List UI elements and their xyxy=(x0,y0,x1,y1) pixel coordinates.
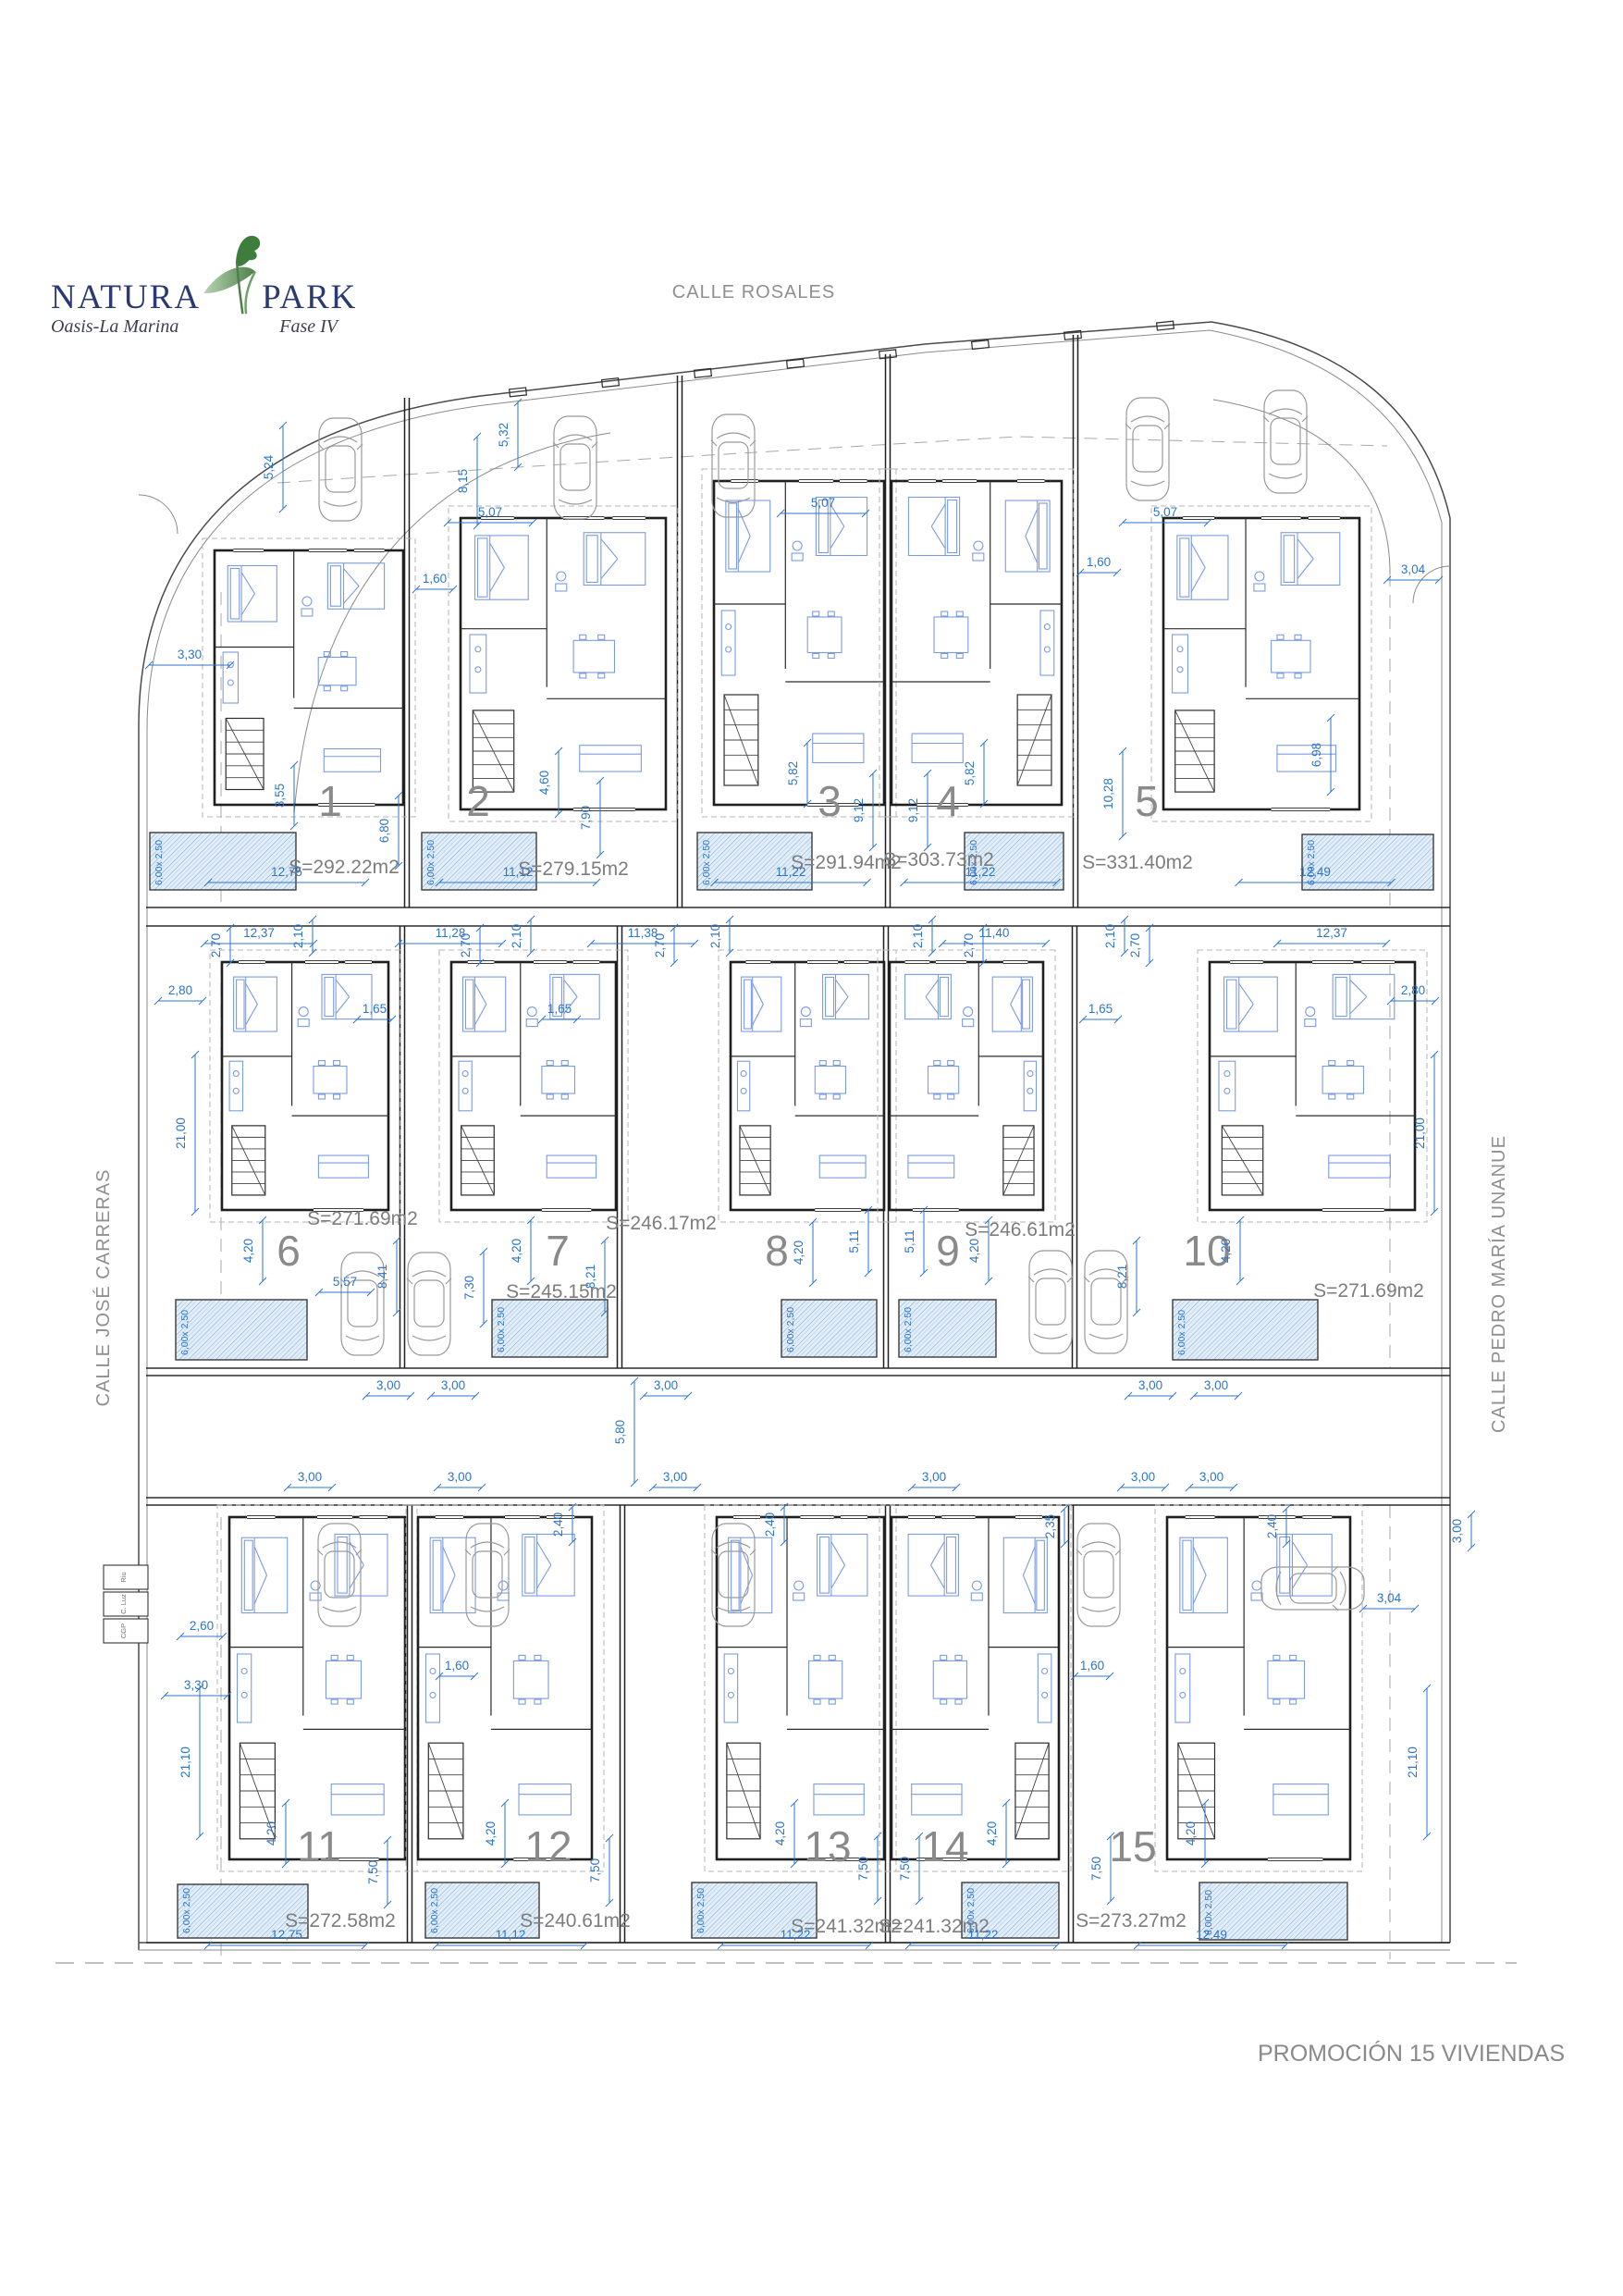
chair-icon xyxy=(941,1699,947,1704)
dimension-label: 12,75 xyxy=(271,1928,302,1942)
dimension-label: 3,00 xyxy=(1204,1378,1228,1392)
dimension-label: 21,00 xyxy=(1413,1117,1427,1149)
dimension-label: 12,37 xyxy=(243,926,275,940)
plan-element xyxy=(1292,1541,1307,1564)
window-icon xyxy=(1186,1514,1215,1520)
pool-dimension-label: 6,00x 2,50 xyxy=(179,1310,191,1355)
chair-icon xyxy=(324,686,330,691)
dimension-label: 1,65 xyxy=(547,1002,572,1016)
sink-icon xyxy=(1254,584,1265,591)
window-icon xyxy=(239,959,265,965)
bed-icon xyxy=(742,977,781,1031)
chair-icon xyxy=(318,1061,325,1066)
pillow-icon xyxy=(1284,536,1294,583)
dimension-label: 2,10 xyxy=(291,924,305,948)
plan-element xyxy=(490,568,505,592)
chair-icon xyxy=(829,1699,835,1704)
hob-icon xyxy=(728,1692,733,1697)
dimension-label: 5,32 xyxy=(497,423,510,447)
dimension-label: 5,82 xyxy=(963,761,977,785)
window-icon xyxy=(840,478,867,484)
house-outline xyxy=(890,962,1043,1210)
plan-element xyxy=(1292,1565,1307,1588)
table-icon xyxy=(807,617,842,653)
pool-dimension-label: 6,00x 2,50 xyxy=(425,840,436,885)
sink-icon xyxy=(310,1593,321,1600)
house-plan xyxy=(217,1505,417,1871)
dimension-label: 2,40 xyxy=(551,1512,565,1537)
plan-element xyxy=(1011,1005,1022,1025)
pool xyxy=(150,833,296,890)
house-outline xyxy=(891,1517,1059,1859)
plan-element xyxy=(564,980,577,996)
house-plan xyxy=(1155,1505,1362,1871)
plot-number: 9 xyxy=(936,1227,960,1275)
chair-icon xyxy=(580,635,586,639)
pool-dimension-label: 6,00x 2,50 xyxy=(429,1888,440,1933)
dimension-label: 3,00 xyxy=(663,1470,687,1484)
chair-icon xyxy=(955,1655,962,1660)
bed-icon xyxy=(241,1537,287,1612)
plan-element xyxy=(1297,559,1313,579)
promotion-title: PROMOCIÓN 15 VIVIENDAS xyxy=(1258,2040,1565,2067)
dimension-label: 9,12 xyxy=(852,798,866,822)
chair-icon xyxy=(934,1061,941,1066)
plan-element xyxy=(601,539,618,560)
pillow-icon xyxy=(586,536,597,583)
dimension-label: 2,80 xyxy=(168,983,192,997)
table-icon xyxy=(1322,1067,1363,1093)
pillow-icon xyxy=(1039,503,1048,569)
toilet-icon xyxy=(1306,1007,1315,1017)
kitchen-icon xyxy=(1038,1654,1051,1722)
car-icon xyxy=(1076,1524,1121,1626)
plan-element xyxy=(443,1547,455,1575)
plot-number: 14 xyxy=(921,1822,968,1870)
car-icon xyxy=(1028,1251,1073,1353)
pillow-icon xyxy=(948,500,957,553)
chair-icon xyxy=(598,635,605,639)
dimension-label: 2,10 xyxy=(911,924,925,948)
window-icon xyxy=(941,1514,975,1520)
plot-area: S=245.15m2 xyxy=(506,1281,617,1302)
dimension-label: 5,82 xyxy=(786,761,800,785)
dimension-label: 8,21 xyxy=(1115,1265,1129,1289)
house-plan xyxy=(1198,950,1427,1222)
toilet-icon xyxy=(299,1007,308,1017)
house-plan xyxy=(439,950,628,1222)
chair-icon xyxy=(547,1094,553,1099)
dimension-label: 3,00 xyxy=(376,1378,400,1392)
bed-icon xyxy=(1003,1537,1047,1612)
window-icon xyxy=(309,548,347,553)
pillow-icon xyxy=(947,1537,956,1594)
plot-number: 2 xyxy=(466,777,490,825)
dimension-label: 3,30 xyxy=(184,1678,208,1692)
chair-icon xyxy=(1295,673,1301,678)
chair-icon xyxy=(814,1655,820,1660)
plot-area: S=279.15m2 xyxy=(518,858,629,880)
dimension-label: 1,65 xyxy=(363,1002,387,1016)
chair-icon xyxy=(1347,1094,1354,1099)
window-icon xyxy=(1309,515,1340,521)
hob-icon xyxy=(1027,1088,1033,1093)
bed-icon xyxy=(1180,1537,1227,1612)
bed-icon xyxy=(430,1537,475,1612)
dimension-label: 5,11 xyxy=(847,1229,861,1253)
plan-element xyxy=(1011,983,1022,1004)
sink-icon xyxy=(971,1593,982,1600)
toilet-icon xyxy=(557,572,566,581)
bed-icon xyxy=(905,974,952,1018)
plot-area: S=292.22m2 xyxy=(289,857,400,878)
chair-icon xyxy=(833,1061,840,1066)
house-plan xyxy=(879,469,1074,817)
house-plan xyxy=(878,950,1055,1222)
window-icon xyxy=(1312,959,1353,965)
pillow-icon xyxy=(940,977,948,1016)
setback-line xyxy=(1151,506,1371,821)
plot-number: 13 xyxy=(804,1822,851,1870)
setback-line xyxy=(878,950,1055,1222)
plan-element xyxy=(1026,537,1038,563)
plan-element xyxy=(738,537,750,563)
plan-element xyxy=(344,586,360,604)
boundary-post xyxy=(972,340,990,350)
site-plan-page: NATURA PARK Oasis-La Marina Fase xyxy=(0,0,1623,2296)
setback-line xyxy=(719,950,896,1222)
pool-dimension-label: 6,00x 2,50 xyxy=(785,1307,796,1352)
chair-icon xyxy=(833,1094,840,1099)
car-icon xyxy=(465,1524,510,1626)
window-icon xyxy=(807,959,838,965)
sofa-icon xyxy=(912,734,963,763)
window-icon xyxy=(1322,1207,1384,1213)
car-icon xyxy=(553,416,597,519)
hob-icon xyxy=(728,1669,733,1674)
plan-element xyxy=(601,559,618,579)
pillow-icon xyxy=(478,538,487,597)
setback-line xyxy=(1198,950,1427,1222)
kitchen-icon xyxy=(1040,611,1054,675)
hob-icon xyxy=(1180,1692,1186,1697)
pillow-icon xyxy=(820,1537,830,1594)
chair-icon xyxy=(934,1094,941,1099)
chair-icon xyxy=(956,611,963,616)
dimension-label: 11,40 xyxy=(979,926,1010,940)
pillow-icon xyxy=(325,977,334,1016)
chair-icon xyxy=(1295,635,1301,639)
pillow-icon xyxy=(729,503,737,569)
dimension-label: 21,10 xyxy=(1406,1747,1420,1778)
plot-area: S=273.27m2 xyxy=(1076,1910,1187,1932)
chair-icon xyxy=(347,1655,353,1660)
sink-icon xyxy=(556,584,567,591)
car-icon xyxy=(407,1253,451,1355)
setback-line xyxy=(449,506,678,821)
kitchen-icon xyxy=(459,1061,472,1111)
pillow-icon xyxy=(330,566,340,607)
sink-icon xyxy=(800,1019,811,1027)
bed-icon xyxy=(908,498,959,556)
plan-element xyxy=(753,1005,764,1025)
plan-element xyxy=(1193,1575,1206,1604)
window-icon xyxy=(841,1514,867,1520)
table-icon xyxy=(1268,1660,1305,1698)
chair-icon xyxy=(948,1061,954,1066)
car-icon xyxy=(1125,398,1170,500)
plan-element xyxy=(1191,568,1205,592)
dimension-label: 2,70 xyxy=(459,933,473,957)
plan-element xyxy=(241,573,254,594)
house-outline xyxy=(891,481,1062,805)
hob-icon xyxy=(1027,1071,1033,1077)
pool-dimension-label: 6,00x 2,50 xyxy=(1176,1310,1187,1355)
sink-icon xyxy=(1251,1593,1262,1600)
kitchen-icon xyxy=(1219,1061,1236,1111)
pillow-icon xyxy=(1180,538,1189,597)
car-icon xyxy=(1263,390,1308,493)
window-icon xyxy=(345,959,372,965)
plan-element xyxy=(254,1575,266,1604)
pillow-icon xyxy=(465,980,473,1029)
house-outline xyxy=(1210,962,1415,1210)
pillow-icon xyxy=(237,980,244,1029)
hob-icon xyxy=(1224,1071,1230,1077)
chair-icon xyxy=(535,1699,541,1704)
sofa-icon xyxy=(580,746,642,772)
dimension-label: 12,49 xyxy=(1196,1928,1227,1942)
chair-icon xyxy=(1277,673,1284,678)
hob-icon xyxy=(741,1088,746,1093)
plot-number: 8 xyxy=(765,1227,789,1275)
dimension-label: 3,00 xyxy=(1199,1470,1223,1484)
window-icon xyxy=(1272,807,1331,812)
dimension-label: 12,49 xyxy=(1299,865,1331,879)
pillow-icon xyxy=(744,980,752,1029)
dimension-label: 5,24 xyxy=(262,454,276,479)
sofa-icon xyxy=(519,1784,571,1815)
chair-icon xyxy=(519,1699,525,1704)
bed-icon xyxy=(1281,533,1340,586)
sofa-icon xyxy=(331,1784,384,1815)
chair-icon xyxy=(347,1699,353,1704)
plot-area: S=246.17m2 xyxy=(606,1213,717,1234)
chair-icon xyxy=(1290,1699,1297,1704)
pillow-icon xyxy=(1023,980,1030,1029)
dimension-label: 7,50 xyxy=(366,1860,380,1884)
chair-icon xyxy=(813,611,819,616)
chair-icon xyxy=(1329,1094,1335,1099)
sink-icon xyxy=(526,1019,537,1027)
dimension-label: 2,70 xyxy=(653,933,667,957)
dimension-label: 10,28 xyxy=(1101,778,1115,809)
window-icon xyxy=(936,959,966,965)
window-icon xyxy=(436,1514,463,1520)
table-icon xyxy=(933,1660,966,1698)
house-outline xyxy=(461,518,666,809)
dimension-label: 2,70 xyxy=(1128,933,1142,957)
plot-number: 1 xyxy=(318,777,342,825)
dimension-label: 5,07 xyxy=(478,505,502,519)
dimension-label: 5,07 xyxy=(811,496,835,510)
hob-icon xyxy=(430,1692,436,1697)
dimension-label: 3,00 xyxy=(1450,1519,1464,1543)
chair-icon xyxy=(334,1094,340,1099)
plan-element xyxy=(830,526,844,549)
window-icon xyxy=(913,1207,959,1213)
hob-icon xyxy=(1224,1088,1230,1093)
dimension-label: 11,12 xyxy=(503,865,534,879)
toilet-icon xyxy=(527,1007,536,1017)
plan-element xyxy=(246,983,258,1004)
sink-icon xyxy=(963,1019,974,1027)
window-icon xyxy=(247,1514,275,1520)
pillow-icon xyxy=(244,1540,252,1610)
house-plan xyxy=(705,1505,896,1871)
window-icon xyxy=(1303,1514,1333,1520)
plan-element xyxy=(1191,543,1205,567)
sofa-icon xyxy=(318,1155,368,1178)
plan-element xyxy=(241,594,254,615)
plot-number: 6 xyxy=(277,1227,301,1275)
dimension-label: 2,10 xyxy=(708,924,722,948)
dimension-label: 4,20 xyxy=(484,1821,498,1845)
table-icon xyxy=(809,1660,842,1698)
chair-icon xyxy=(948,1094,954,1099)
hob-icon xyxy=(1042,1669,1048,1674)
hob-icon xyxy=(462,1071,468,1077)
toilet-icon xyxy=(794,1581,804,1590)
hob-icon xyxy=(233,1071,239,1077)
dimension-label: 11,22 xyxy=(776,865,806,879)
kitchen-icon xyxy=(724,1654,737,1722)
dimension-label: 21,10 xyxy=(178,1747,192,1778)
dimension-label: 11,12 xyxy=(496,1928,526,1942)
hob-icon xyxy=(475,667,481,673)
bed-icon xyxy=(1277,1535,1332,1597)
pool xyxy=(176,1300,307,1360)
hob-icon xyxy=(1042,1692,1048,1697)
pool-dimension-label: 6,00x 2,50 xyxy=(181,1888,192,1933)
window-icon xyxy=(1268,1857,1322,1862)
plan-element xyxy=(741,1547,753,1575)
dimension-label: 7,30 xyxy=(462,1276,476,1300)
dimension-label: 4,20 xyxy=(985,1821,999,1845)
dimension-label: 11,22 xyxy=(781,1928,811,1942)
window-icon xyxy=(1015,1514,1042,1520)
dimension-label: 1,60 xyxy=(445,1659,469,1673)
plan-element xyxy=(336,980,350,996)
plan-element xyxy=(931,1541,945,1564)
plot-number: 4 xyxy=(936,777,960,825)
chair-icon xyxy=(561,1061,568,1066)
dimension-label: 5,11 xyxy=(903,1229,916,1253)
pillow-icon xyxy=(1227,980,1236,1029)
chair-icon xyxy=(941,611,948,616)
dimension-label: 1,60 xyxy=(1087,555,1111,569)
chair-icon xyxy=(535,1655,541,1660)
plan-element xyxy=(831,1565,845,1588)
dimension-label: 4,20 xyxy=(773,1821,787,1845)
dimension-label: 3,00 xyxy=(654,1378,678,1392)
table-icon xyxy=(318,658,356,685)
kitchen-icon xyxy=(238,1654,252,1722)
dimension-label: 21,00 xyxy=(174,1117,188,1149)
plan-element xyxy=(753,983,764,1004)
site-plan-drawing: CALLE ROSALES CALLE JOSÉ CARRERAS CALLE … xyxy=(0,0,1623,2296)
toilet-icon xyxy=(972,1581,981,1590)
sink-icon xyxy=(792,553,803,561)
pillow-icon xyxy=(1335,977,1346,1016)
hob-icon xyxy=(1044,647,1050,652)
chair-icon xyxy=(955,1699,962,1704)
dimension-label: 4,20 xyxy=(1219,1239,1233,1263)
dimension-label: 3,00 xyxy=(1131,1470,1155,1484)
chair-icon xyxy=(1290,1655,1297,1660)
hob-icon xyxy=(241,1669,247,1674)
chair-icon xyxy=(941,654,948,659)
chair-icon xyxy=(341,652,348,657)
table-icon xyxy=(934,617,968,653)
hob-icon xyxy=(1180,1669,1186,1674)
chair-icon xyxy=(1347,1061,1354,1066)
house-outline xyxy=(714,481,884,805)
toilet-icon xyxy=(974,541,983,550)
table-icon xyxy=(314,1067,347,1093)
chair-icon xyxy=(341,686,348,691)
plan-element xyxy=(926,980,938,996)
kitchen-icon xyxy=(470,635,486,693)
plan-element xyxy=(1193,1547,1206,1575)
dimension-label: 1,60 xyxy=(423,572,447,586)
dimension-label: 1,60 xyxy=(1080,1659,1104,1673)
dimension-label: 4,20 xyxy=(264,1821,278,1845)
house-outline xyxy=(731,962,884,1210)
plan-element xyxy=(1023,1547,1035,1575)
utility-box-label: CGP xyxy=(119,1623,128,1638)
window-icon xyxy=(801,1514,834,1520)
sink-icon xyxy=(1305,1019,1316,1027)
house-outline xyxy=(229,1517,405,1859)
table-icon xyxy=(542,1067,575,1093)
dimension-label: 3,30 xyxy=(178,648,202,661)
chair-icon xyxy=(828,654,834,659)
toilet-icon xyxy=(1255,572,1264,581)
pool xyxy=(492,1300,608,1357)
bed-icon xyxy=(908,1535,958,1597)
pool-dimension-label: 6,00x 2,50 xyxy=(903,1307,914,1352)
bed-icon xyxy=(1224,977,1278,1031)
dimension-label: 6,80 xyxy=(377,819,391,843)
sofa-icon xyxy=(1277,746,1336,772)
hob-icon xyxy=(241,1692,247,1697)
setback-line xyxy=(203,538,415,817)
dimension-label: 3,00 xyxy=(922,1470,946,1484)
table-icon xyxy=(928,1067,959,1093)
dimension-label: 7,50 xyxy=(588,1858,602,1882)
plan-element xyxy=(926,997,938,1014)
bed-icon xyxy=(227,566,277,623)
dimension-label: 12,37 xyxy=(1316,926,1347,940)
window-icon xyxy=(746,959,771,965)
plot-number: 7 xyxy=(546,1227,570,1275)
chair-icon xyxy=(956,654,963,659)
chair-icon xyxy=(819,1094,826,1099)
dimension-label: 5,80 xyxy=(613,1420,627,1444)
dimension-label: 2,10 xyxy=(510,924,523,948)
street-label-top: CALLE ROSALES xyxy=(672,282,835,302)
